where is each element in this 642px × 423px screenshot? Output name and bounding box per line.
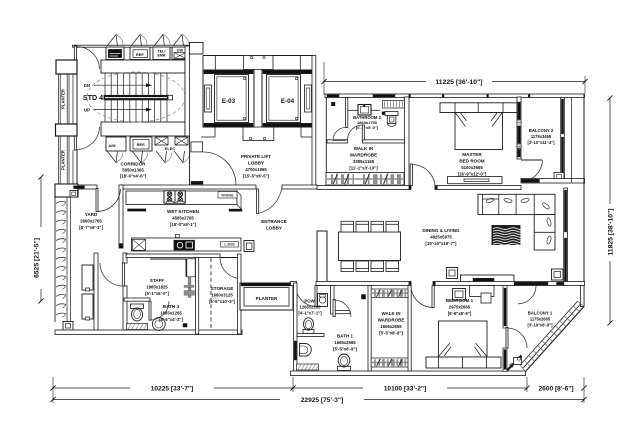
svg-text:[18'-6"x4'-6"]: [18'-6"x4'-6"] xyxy=(120,174,147,179)
svg-text:E-03: E-03 xyxy=(222,98,236,105)
svg-text:1660x3125: 1660x3125 xyxy=(211,293,233,298)
svg-text:REF.: REF. xyxy=(137,142,146,147)
svg-text:LOBBY: LOBBY xyxy=(266,226,282,231)
svg-text:DW: DW xyxy=(177,49,184,53)
svg-text:4700x1965: 4700x1965 xyxy=(245,167,267,172)
svg-text:WALK IN: WALK IN xyxy=(382,311,401,316)
svg-text:WALK IN: WALK IN xyxy=(354,146,374,151)
svg-text:LOBBY: LOBBY xyxy=(248,161,264,166)
svg-text:5100x3665: 5100x3665 xyxy=(461,165,483,170)
svg-text:2975x2665: 2975x2665 xyxy=(449,305,471,310)
svg-text:E-04: E-04 xyxy=(281,98,295,105)
svg-text:[15'-0"x9'-1"]: [15'-0"x9'-1"] xyxy=(170,222,197,227)
svg-text:[16'-9"x12'-0"]: [16'-9"x12'-0"] xyxy=(458,172,487,177)
svg-text:22925 [75'-3"]: 22925 [75'-3"] xyxy=(301,397,343,404)
svg-text:WARDROBE: WARDROBE xyxy=(378,318,405,323)
svg-text:REF.: REF. xyxy=(136,52,145,57)
svg-text:UP: UP xyxy=(84,108,90,113)
svg-text:2600 [8'-6"]: 2600 [8'-6"] xyxy=(538,385,573,392)
svg-text:STORAGE: STORAGE xyxy=(211,286,234,291)
svg-text:YARD: YARD xyxy=(85,212,98,217)
svg-text:10100 [33'-2"]: 10100 [33'-2"] xyxy=(384,385,426,392)
svg-text:1655x2655: 1655x2655 xyxy=(380,324,402,329)
svg-text:BATH 3: BATH 3 xyxy=(163,304,180,309)
svg-text:DINING & LIVING: DINING & LIVING xyxy=(422,228,460,233)
svg-text:[6'-1"x6'-0"]: [6'-1"x6'-0"] xyxy=(145,291,169,296)
svg-text:5650x1365: 5650x1365 xyxy=(122,168,144,173)
svg-text:4565x2765: 4565x2765 xyxy=(172,216,194,221)
svg-text:11225 [36'-10"]: 11225 [36'-10"] xyxy=(435,79,482,86)
svg-text:[5'-6"x4'-2"]: [5'-6"x4'-2"] xyxy=(159,317,183,322)
svg-text:BEDROOM 1: BEDROOM 1 xyxy=(446,298,474,303)
svg-text:[15'-10"x19'-7"]: [15'-10"x19'-7"] xyxy=(426,241,458,246)
svg-text:[9'-9"x8'-9"]: [9'-9"x8'-9"] xyxy=(448,311,472,316)
svg-text:MASTER: MASTER xyxy=(462,152,482,157)
svg-text:3385x1165: 3385x1165 xyxy=(353,159,375,164)
svg-text:PRIVATE LIFT: PRIVATE LIFT xyxy=(241,154,271,159)
svg-text:[5'-5"x10'-3"]: [5'-5"x10'-3"] xyxy=(209,299,236,304)
svg-text:STAFF: STAFF xyxy=(150,278,165,283)
svg-text:PLANTER: PLANTER xyxy=(61,150,66,170)
svg-text:CORRIDOR: CORRIDOR xyxy=(120,162,146,167)
svg-text:ELEC: ELEC xyxy=(165,146,176,151)
svg-text:FRIDGE: FRIDGE xyxy=(221,193,233,197)
svg-text:6525 [21'-5"]: 6525 [21'-5"] xyxy=(34,238,41,278)
svg-text:PLANTER: PLANTER xyxy=(256,296,278,301)
svg-text:WET KITCHEN: WET KITCHEN xyxy=(167,209,200,214)
svg-text:A/M: A/M xyxy=(109,144,116,148)
svg-text:BED ROOM: BED ROOM xyxy=(459,159,484,164)
svg-text:1665x2665: 1665x2665 xyxy=(334,340,356,345)
svg-text:STD 4: STD 4 xyxy=(83,93,103,102)
svg-text:[11'-1"x3'-10"]: [11'-1"x3'-10"] xyxy=(349,166,378,171)
svg-text:[15'-5"x6'-5"]: [15'-5"x6'-5"] xyxy=(243,174,270,179)
svg-text:10225 [33'-7"]: 10225 [33'-7"] xyxy=(151,385,193,392)
svg-text:POW.: POW. xyxy=(304,299,315,304)
svg-text:11825 [38'-10"]: 11825 [38'-10"] xyxy=(608,208,615,255)
svg-text:BALCONY 2: BALCONY 2 xyxy=(529,128,554,133)
svg-text:EMR: EMR xyxy=(158,54,166,58)
svg-text:BATH 1: BATH 1 xyxy=(337,334,353,339)
svg-text:1665x1265: 1665x1265 xyxy=(160,311,182,316)
svg-text:1175x3465: 1175x3465 xyxy=(531,134,552,139)
svg-text:PLANTER: PLANTER xyxy=(61,89,66,109)
svg-text:2660x2765: 2660x2765 xyxy=(80,219,102,224)
svg-text:[3'-10"x11'-4"]: [3'-10"x11'-4"] xyxy=(528,140,556,145)
svg-text:4825x5975: 4825x5975 xyxy=(430,235,452,240)
svg-text:L-2000: L-2000 xyxy=(224,243,234,247)
svg-text:[4'-1"x7'-1"]: [4'-1"x7'-1"] xyxy=(298,311,322,316)
svg-text:[3'-10"x8'-9"]: [3'-10"x8'-9"] xyxy=(528,323,554,328)
svg-text:[8'-7"x9'-1"]: [8'-7"x9'-1"] xyxy=(79,225,103,230)
svg-text:BALCONY 1: BALCONY 1 xyxy=(528,311,553,316)
svg-text:WARDROBE: WARDROBE xyxy=(350,153,377,158)
svg-text:1865x1825: 1865x1825 xyxy=(146,285,168,290)
svg-text:1175x2665: 1175x2665 xyxy=(530,317,551,322)
svg-text:[5'-5"x8'-9"]: [5'-5"x8'-9"] xyxy=(333,347,357,352)
svg-text:ENTRANCE: ENTRANCE xyxy=(261,219,287,224)
svg-text:DN: DN xyxy=(84,83,90,88)
svg-text:1265x2165: 1265x2165 xyxy=(300,305,322,310)
svg-text:[5'-5"x8'-8"]: [5'-5"x8'-8"] xyxy=(379,331,403,336)
